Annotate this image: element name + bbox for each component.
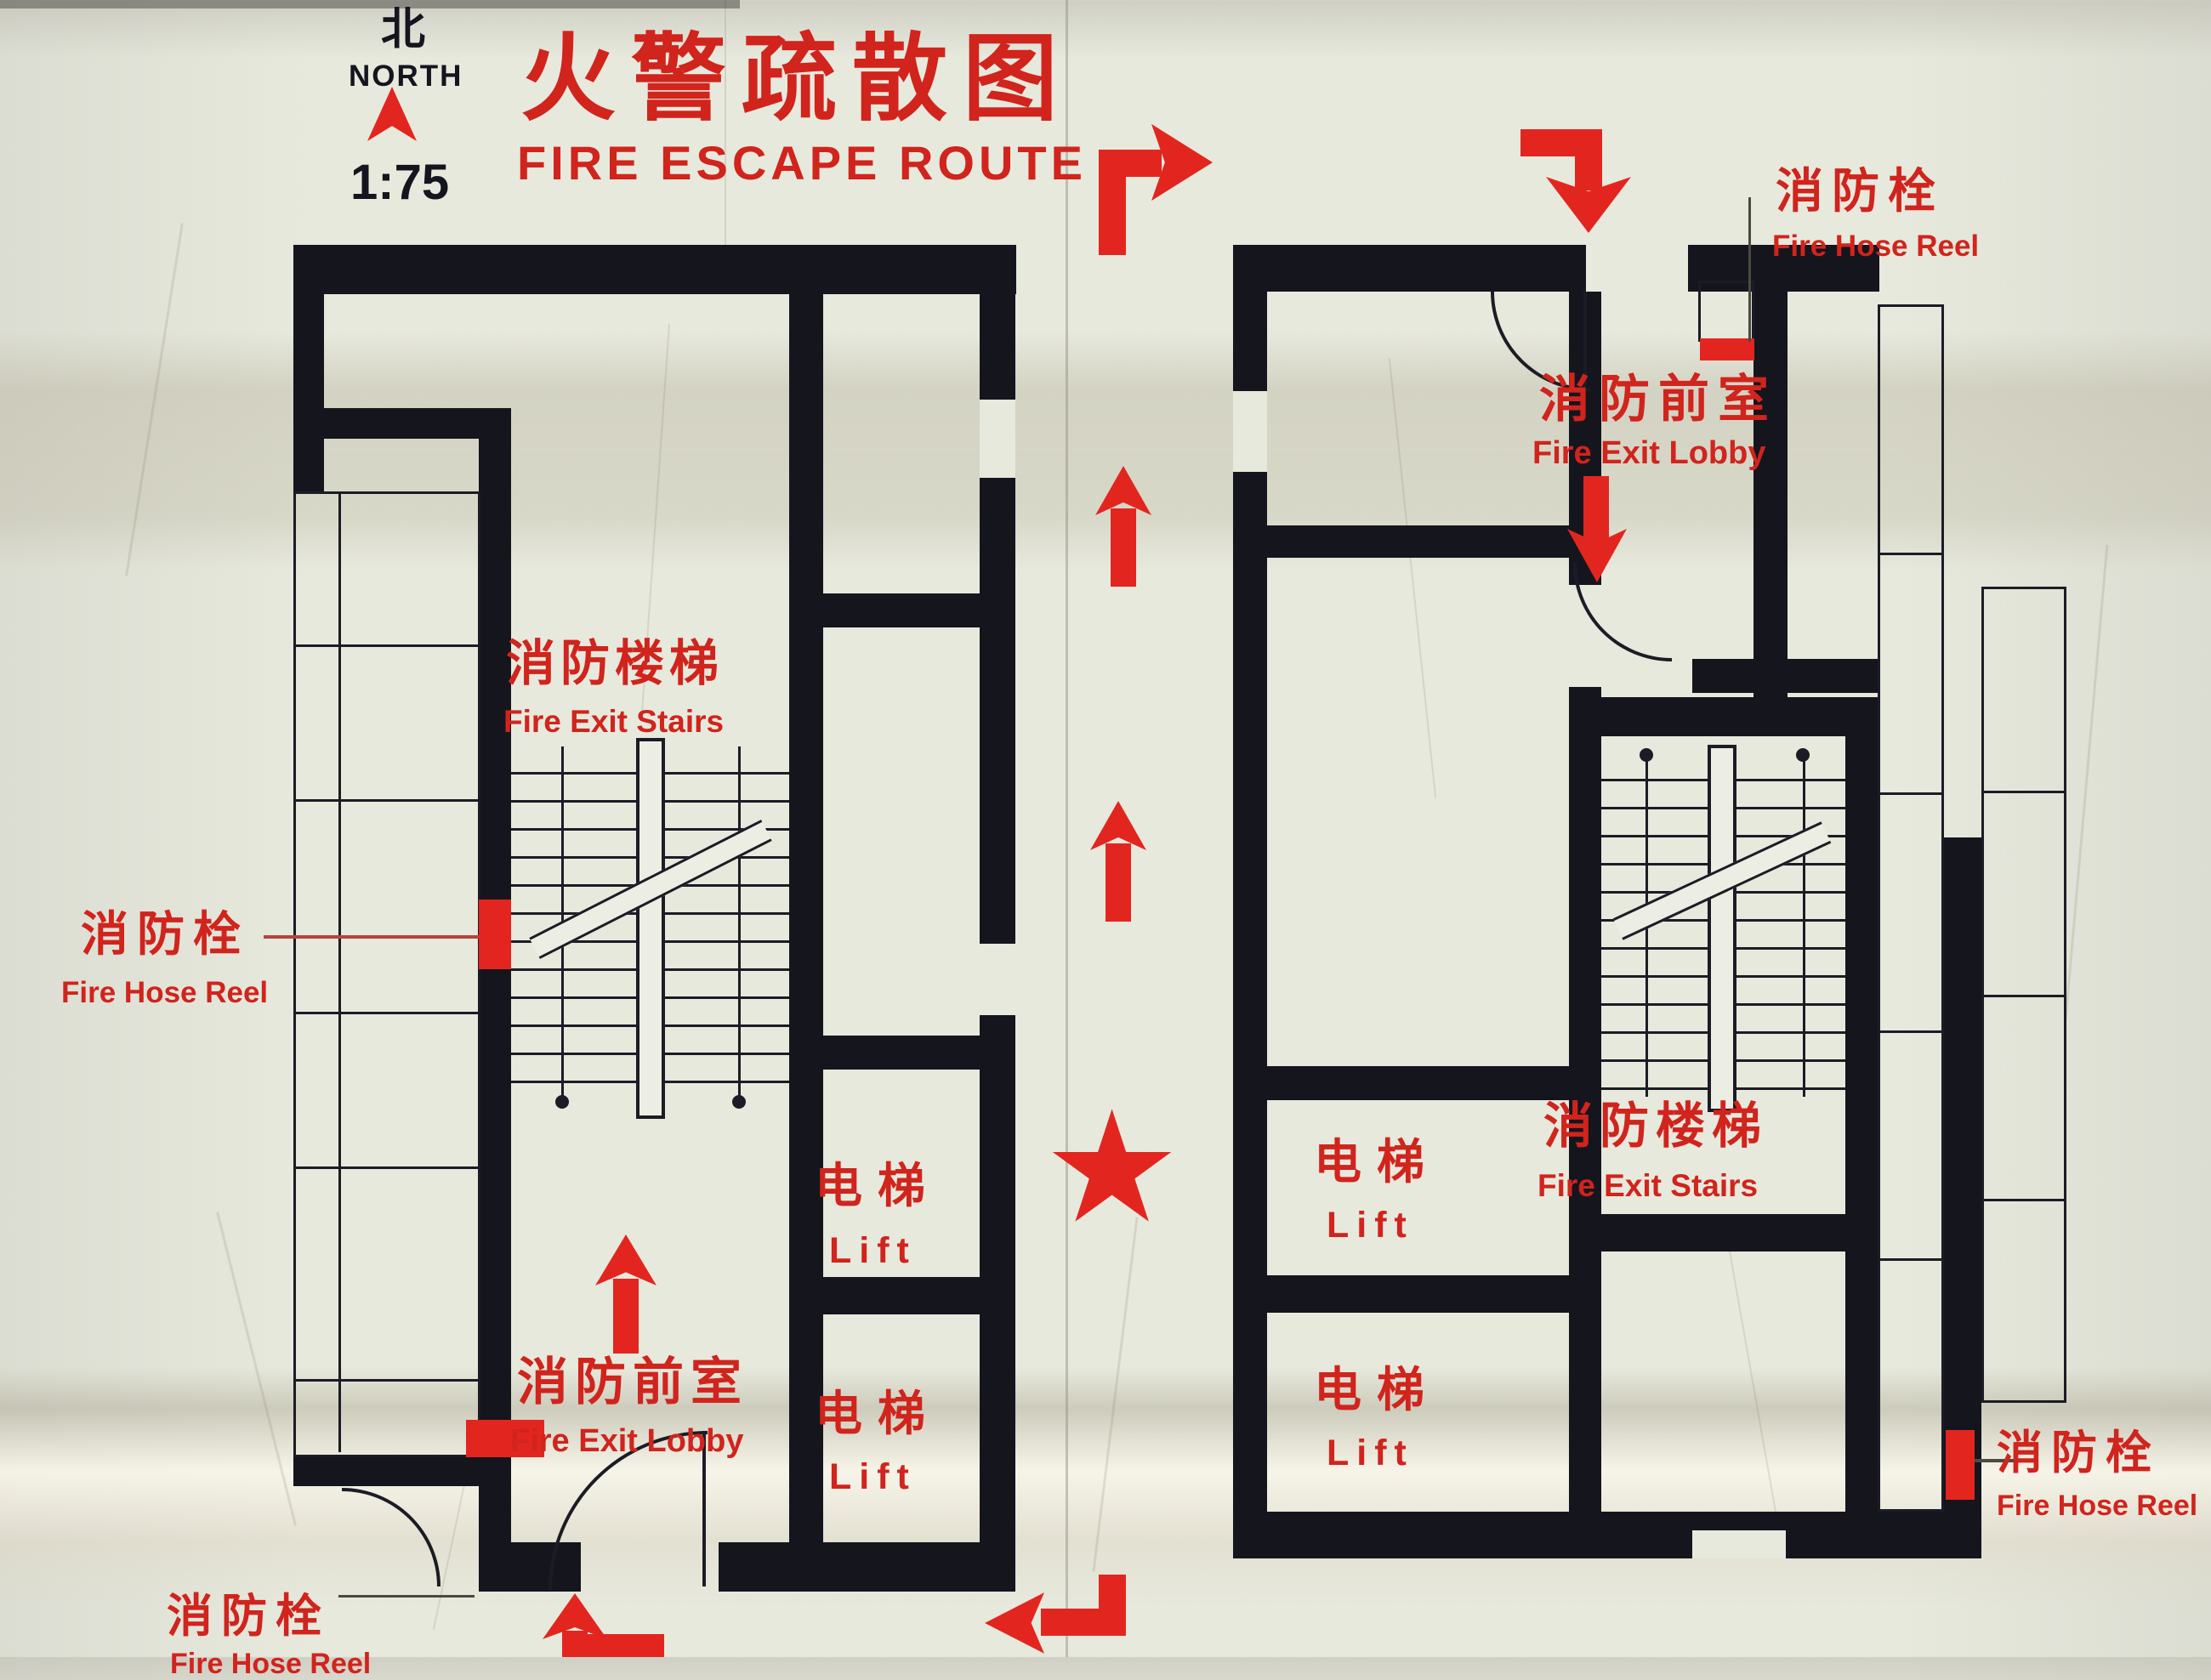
fire-exit-stairs-label-zh: 消防楼梯 <box>506 639 724 689</box>
marble-vein <box>125 223 184 576</box>
window-slit <box>980 400 1015 478</box>
fire-hose-reel-marker <box>1700 338 1754 360</box>
bay-inner-line <box>338 491 341 1452</box>
bay-partition <box>293 1379 480 1382</box>
wall <box>1845 697 1879 1556</box>
fire-escape-route-sign: { "header": { "north_zh": "北", "north_en… <box>0 0 2211 1657</box>
arrow-shaft <box>1583 476 1609 544</box>
map-scale: 1:75 <box>350 158 449 207</box>
room-partition <box>1878 553 1944 555</box>
door-opening <box>1692 1530 1786 1558</box>
hose-cabinet <box>1698 281 1754 342</box>
stair-handrail <box>636 738 665 1119</box>
bay-partition <box>1981 1199 2066 1201</box>
north-label-en: NORTH <box>349 61 463 91</box>
bay-partition <box>1981 791 2066 793</box>
stair-dot <box>732 1095 746 1109</box>
wall <box>1267 525 1569 558</box>
stair-dot <box>555 1095 569 1109</box>
fire-exit-stairs-label-zh: 消防楼梯 <box>1543 1102 1768 1151</box>
arrow-head <box>985 1590 1044 1656</box>
wall <box>293 245 1016 294</box>
wall <box>479 408 511 1592</box>
wall <box>980 294 1015 1592</box>
fire-hose-reel-marker <box>1946 1430 1975 1500</box>
arrow-shaft <box>1111 508 1136 587</box>
sign-title-en: FIRE ESCAPE ROUTE <box>517 139 1087 187</box>
lift-label-zh: 电梯 <box>1314 1139 1440 1187</box>
fire-hose-reel-label-zh: 消防栓 <box>1776 168 1944 216</box>
wall <box>789 593 1015 627</box>
lift-label-en: Lift <box>829 1233 917 1269</box>
wall <box>1753 292 1788 697</box>
wall <box>1569 292 1601 1512</box>
fire-hose-reel-label-en: Fire Hose Reel <box>170 1649 371 1678</box>
room-partition <box>1878 1030 1944 1033</box>
marble-vein <box>2065 545 2109 1019</box>
wall <box>1569 1214 1879 1251</box>
wall <box>293 1456 480 1486</box>
bay-partition <box>293 644 480 647</box>
bay-rooms-outline <box>293 491 480 1457</box>
lift-label-zh: 电梯 <box>1314 1367 1440 1415</box>
room-partition <box>1878 1258 1944 1261</box>
lift-label-zh: 电梯 <box>815 1163 941 1211</box>
leader-line <box>264 935 479 939</box>
fire-hose-reel-label-zh: 消防栓 <box>81 911 249 959</box>
photo-edge <box>0 0 740 9</box>
arrow-shaft <box>1575 129 1602 190</box>
fire-hose-reel-label-zh: 消防栓 <box>1997 1430 2160 1476</box>
fire-hose-reel-marker <box>479 900 511 969</box>
arrow-shaft <box>1105 843 1131 922</box>
marble-vein <box>1389 358 1436 797</box>
bay-partition <box>293 1166 480 1169</box>
lift-label-zh: 电梯 <box>815 1391 941 1439</box>
wall <box>1569 697 1879 736</box>
bay-partition <box>1981 995 2066 997</box>
arrow-head <box>595 1234 656 1286</box>
fire-hose-reel-label-zh: 消防栓 <box>167 1593 330 1639</box>
bay-partition <box>293 799 480 802</box>
fire-exit-lobby-label-en: Fire Exit Lobby <box>510 1425 743 1457</box>
stair-dot <box>1796 748 1810 762</box>
stair-stringer <box>738 746 741 1107</box>
leader-line <box>1748 197 1751 342</box>
arrow-shaft <box>1099 150 1162 177</box>
fire-hose-reel-label-en: Fire Hose Reel <box>1997 1491 2197 1520</box>
fire-hose-reel-label-en: Fire Hose Reel <box>1772 231 1979 261</box>
marble-seam <box>1066 0 1068 1657</box>
wall <box>719 1542 1015 1592</box>
wall <box>293 245 324 491</box>
fire-hose-reel-label-en: Fire Hose Reel <box>61 978 268 1007</box>
marble-vein <box>1092 1217 1138 1571</box>
fire-exit-stairs-label-en: Fire Exit Stairs <box>503 706 724 737</box>
arrow-shaft <box>613 1279 639 1354</box>
window-slit <box>1233 391 1267 472</box>
lift-label-en: Lift <box>1327 1435 1414 1472</box>
service-rooms-outline <box>1878 304 1944 1512</box>
wall <box>1267 1275 1569 1313</box>
stair-stringer <box>1803 753 1805 1097</box>
wall <box>293 408 480 439</box>
stair-handrail <box>1708 745 1736 1112</box>
stair-dot <box>1640 748 1653 762</box>
wall <box>789 1277 1015 1314</box>
leader-line <box>338 1595 475 1598</box>
window-slit <box>980 944 1015 1015</box>
door-arc <box>342 1488 440 1586</box>
arrow-shaft <box>1041 1609 1126 1636</box>
bay-partition <box>293 1012 480 1014</box>
arrow-foot <box>562 1634 664 1657</box>
room-partition <box>1878 792 1944 795</box>
wall <box>789 1036 1015 1070</box>
sign-title-zh: 火警疏散图 <box>520 32 1073 128</box>
north-arrow-icon <box>367 87 417 141</box>
wall <box>1267 1066 1569 1100</box>
north-label-zh: 北 <box>381 9 425 53</box>
marble-vein <box>1727 1243 1777 1519</box>
door-opening <box>1586 245 1688 292</box>
fire-exit-lobby-label-zh: 消防前室 <box>1539 374 1777 425</box>
fire-exit-lobby-label-zh: 消防前室 <box>517 1357 748 1408</box>
current-location-star: ★ <box>1043 1090 1181 1245</box>
fire-exit-lobby-label-en: Fire Exit Lobby <box>1532 437 1765 469</box>
marble-vein <box>216 1212 297 1525</box>
fire-exit-stairs-label-en: Fire Exit Stairs <box>1537 1170 1758 1201</box>
lift-label-en: Lift <box>829 1459 917 1496</box>
lift-label-en: Lift <box>1327 1207 1414 1244</box>
